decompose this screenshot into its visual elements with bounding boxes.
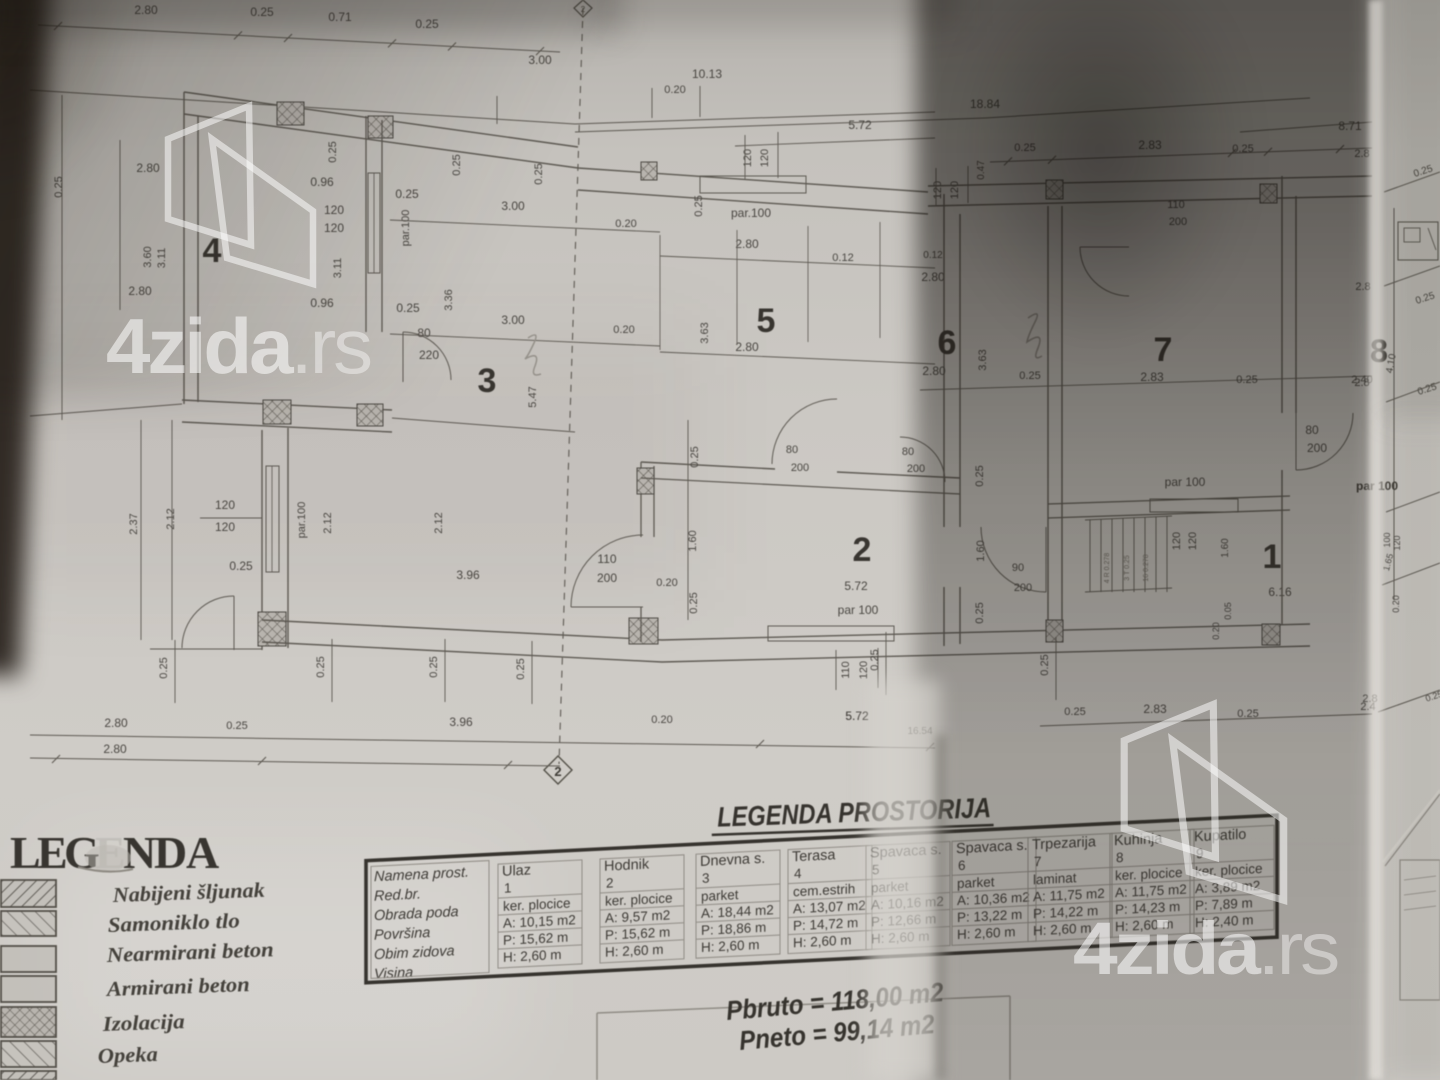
svg-text:4zida.rs: 4zida.rs	[106, 302, 371, 390]
svg-text:4zida.rs: 4zida.rs	[1073, 907, 1338, 990]
